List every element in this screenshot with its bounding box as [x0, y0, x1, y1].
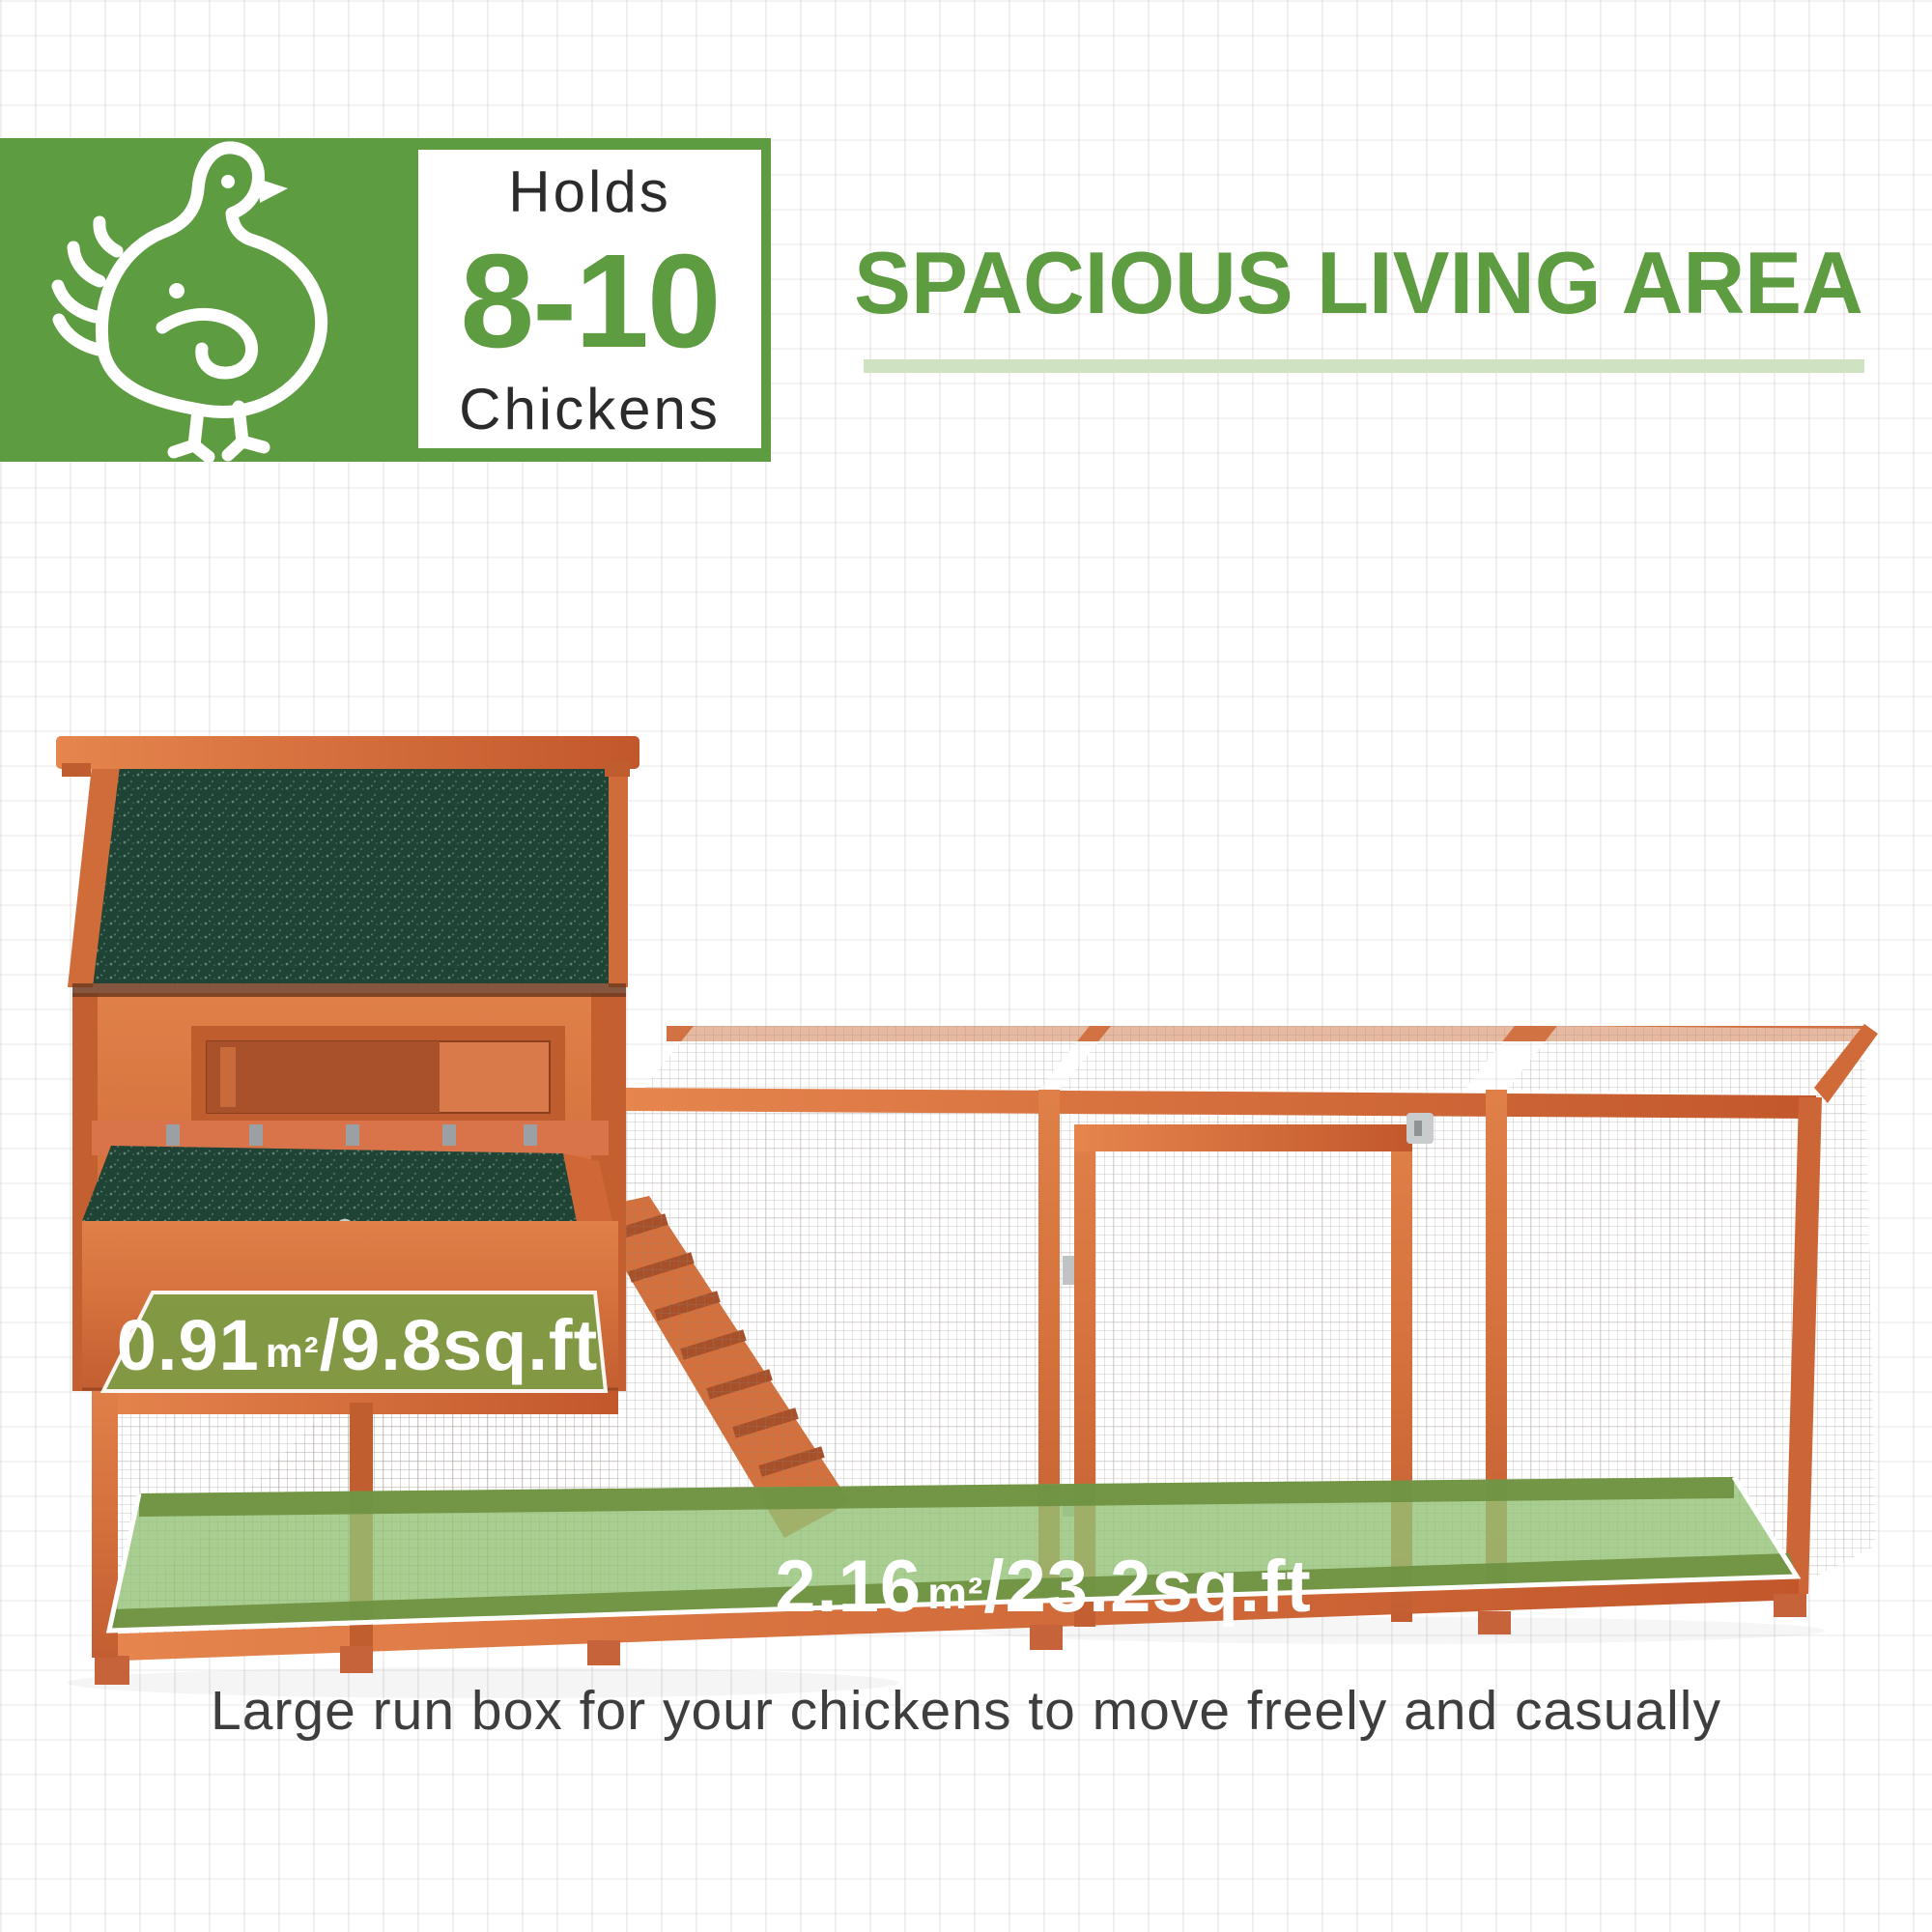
- window-slider-handle[interactable]: [220, 1047, 236, 1107]
- caption-text: Large run box for your chickens to move …: [0, 1679, 1932, 1743]
- house-window[interactable]: [191, 1026, 565, 1128]
- run-area-label: 2.16m²/23.2sq.ft: [775, 1546, 1312, 1628]
- coop-illustration: 2.16m²/23.2sq.ft 0.91m²/9.8sq.ft: [0, 0, 1932, 1932]
- coop-area-label: 0.91m²/9.8sq.ft: [117, 1305, 598, 1385]
- house-roof: [56, 736, 639, 997]
- roof-panel: [75, 765, 626, 983]
- coop-area-banner: 0.91m²/9.8sq.ft: [103, 1293, 606, 1391]
- door-hinge-top: [1063, 1256, 1074, 1285]
- roof-eave-shadow: [72, 983, 626, 997]
- run-top-mesh: [642, 1026, 1864, 1095]
- roof-right-trim: [609, 763, 628, 987]
- product-infographic: Holds 8-10 Chickens SPACIOUS LIVING AREA: [0, 0, 1932, 1932]
- roof-ridge-cap: [56, 736, 639, 769]
